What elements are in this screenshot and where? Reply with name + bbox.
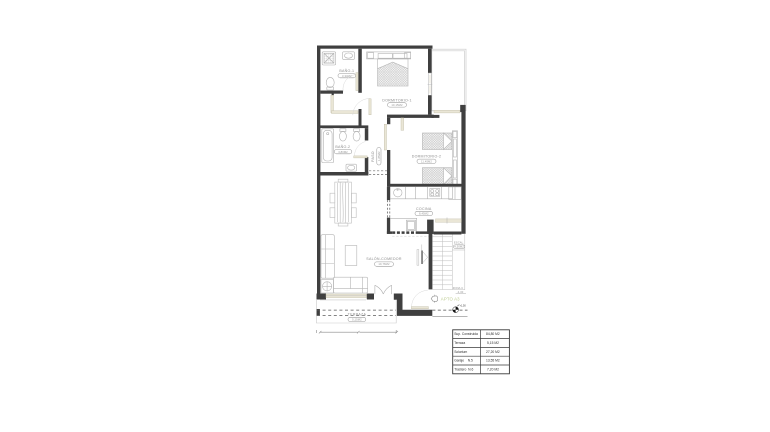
svg-text:TERRAZA: TERRAZA xyxy=(348,312,367,316)
svg-text:1,85M2: 1,85M2 xyxy=(377,151,381,161)
svg-text:Trastero N.6: Trastero N.6 xyxy=(454,367,473,371)
svg-text:ZONA C: ZONA C xyxy=(453,286,464,290)
svg-text:+1,50: +1,50 xyxy=(460,305,467,308)
svg-text:3,80M2: 3,80M2 xyxy=(338,150,348,154)
svg-text:10,15M2: 10,15M2 xyxy=(391,103,403,107)
svg-text:13,55 M2: 13,55 M2 xyxy=(486,359,500,363)
svg-text:SALÓN-COMEDOR: SALÓN-COMEDOR xyxy=(366,256,402,261)
svg-text:3,34M2: 3,34M2 xyxy=(342,74,352,78)
svg-text:27,20 M2: 27,20 M2 xyxy=(486,350,500,354)
svg-text:Solarium: Solarium xyxy=(454,350,467,354)
svg-text:19,76M2: 19,76M2 xyxy=(378,262,390,266)
svg-text:5,15 M2: 5,15 M2 xyxy=(487,341,499,345)
svg-text:11,45M2: 11,45M2 xyxy=(421,159,432,163)
svg-text:4,30: 4,30 xyxy=(458,290,464,294)
svg-text:BAÑO-1: BAÑO-1 xyxy=(339,68,354,73)
svg-text:Terraza: Terraza xyxy=(454,341,465,345)
svg-text:84,80 M2: 84,80 M2 xyxy=(486,332,500,336)
svg-text:7,20 M2: 7,20 M2 xyxy=(487,367,499,371)
svg-text:DORMITORIO-1: DORMITORIO-1 xyxy=(382,98,412,102)
svg-text:BAÑO-2: BAÑO-2 xyxy=(335,144,350,149)
svg-text:COCINA: COCINA xyxy=(416,207,432,211)
svg-text:Sup. Construida: Sup. Construida xyxy=(454,332,478,336)
svg-text:4,50M2: 4,50M2 xyxy=(454,245,464,249)
svg-text:5,15M2: 5,15M2 xyxy=(352,318,362,322)
svg-text:APTO A3: APTO A3 xyxy=(441,296,460,301)
svg-text:PASO: PASO xyxy=(371,151,375,162)
svg-text:Garaje N.5: Garaje N.5 xyxy=(454,359,473,363)
svg-text:ESCAL.: ESCAL. xyxy=(454,241,464,245)
svg-text:DORMITORIO-2: DORMITORIO-2 xyxy=(412,155,442,159)
svg-text:8,45M2: 8,45M2 xyxy=(419,212,429,216)
